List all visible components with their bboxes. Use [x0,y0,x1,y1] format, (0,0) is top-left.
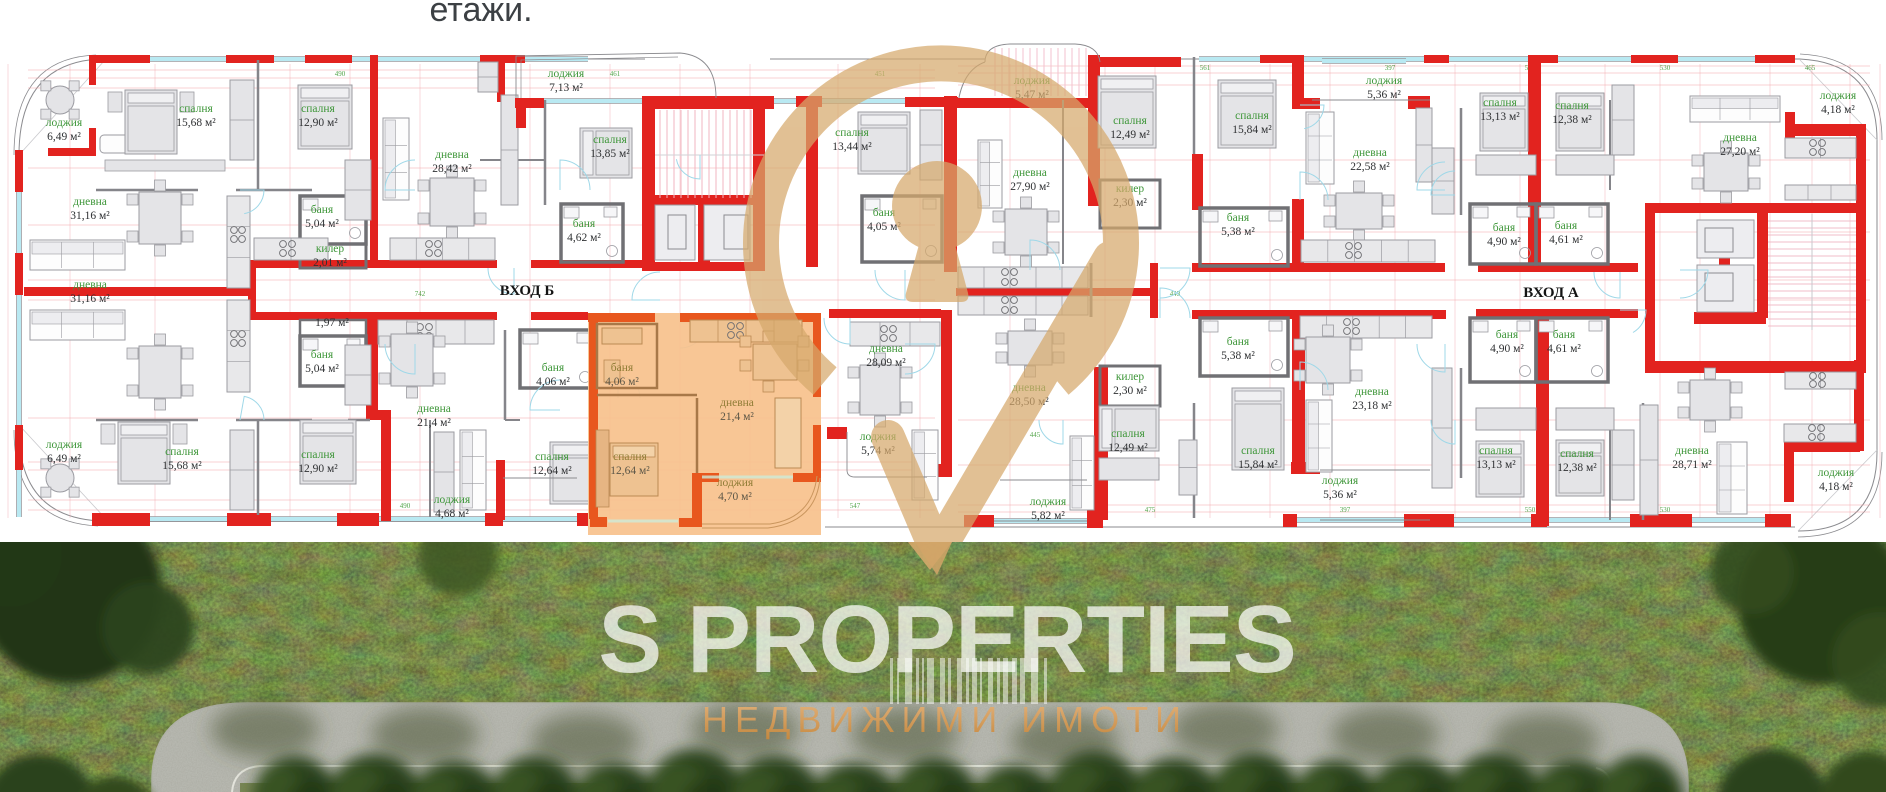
svg-text:2,01 м²: 2,01 м² [313,257,347,269]
svg-text:баня: баня [311,349,334,361]
svg-text:23,18 м²: 23,18 м² [1352,400,1392,412]
svg-text:12,64 м²: 12,64 м² [610,465,650,477]
svg-text:дневна: дневна [73,279,107,291]
svg-text:лоджия: лоджия [46,117,83,129]
svg-text:дневна: дневна [720,397,754,409]
svg-text:742: 742 [415,290,426,298]
svg-text:6,49 м²: 6,49 м² [47,131,81,143]
svg-text:27,90 м²: 27,90 м² [1010,181,1050,193]
svg-text:спалня: спалня [1560,448,1594,460]
svg-text:4,90 м²: 4,90 м² [1490,343,1524,355]
svg-text:5,04 м²: 5,04 м² [305,218,339,230]
svg-text:4,18 м²: 4,18 м² [1821,104,1855,116]
svg-text:баня: баня [1496,329,1519,341]
svg-text:465: 465 [1805,64,1816,72]
svg-text:490: 490 [400,502,411,510]
svg-text:лоджия: лоджия [1820,90,1857,102]
svg-text:дневна: дневна [1355,386,1389,398]
svg-text:лоджия: лоджия [548,68,585,80]
svg-text:28,42 м²: 28,42 м² [432,163,472,175]
svg-text:килер: килер [316,243,345,255]
svg-text:15,68 м²: 15,68 м² [162,460,202,472]
svg-text:1,97 м²: 1,97 м² [315,317,349,329]
svg-text:етажи.: етажи. [429,0,532,29]
svg-text:баня: баня [311,204,334,216]
svg-text:S PROPERTIES: S PROPERTIES [598,586,1296,693]
svg-text:5,82 м²: 5,82 м² [1031,510,1065,522]
svg-text:спалня: спалня [179,103,213,115]
svg-text:дневна: дневна [1675,445,1709,457]
svg-text:спалня: спалня [165,446,199,458]
svg-text:спалня: спалня [1479,445,1513,457]
svg-text:5,38 м²: 5,38 м² [1221,350,1255,362]
svg-text:15,84 м²: 15,84 м² [1232,124,1272,136]
svg-text:5,04 м²: 5,04 м² [305,363,339,375]
svg-text:баня: баня [573,218,596,230]
svg-text:13,85 м²: 13,85 м² [590,148,630,160]
svg-text:12,38 м²: 12,38 м² [1557,462,1597,474]
svg-text:лоджия: лоджия [717,477,754,489]
svg-text:4,18 м²: 4,18 м² [1819,481,1853,493]
svg-text:4,61 м²: 4,61 м² [1549,234,1583,246]
svg-text:4,61 м²: 4,61 м² [1547,343,1581,355]
svg-text:550: 550 [1525,506,1536,514]
svg-text:5,36 м²: 5,36 м² [1367,89,1401,101]
svg-text:6,49 м²: 6,49 м² [47,453,81,465]
svg-text:461: 461 [610,70,621,78]
svg-text:баня: баня [611,362,634,374]
svg-text:15,68 м²: 15,68 м² [176,117,216,129]
svg-text:5,36 м²: 5,36 м² [1323,489,1357,501]
svg-text:НЕДВИЖИМИ ИМОТИ: НЕДВИЖИМИ ИМОТИ [702,699,1188,740]
svg-text:4,68 м²: 4,68 м² [435,508,469,520]
svg-text:12,38 м²: 12,38 м² [1552,114,1592,126]
svg-text:килер: килер [1116,371,1145,383]
svg-text:31,16 м²: 31,16 м² [70,210,110,222]
svg-text:561: 561 [1200,64,1211,72]
svg-text:4,62 м²: 4,62 м² [567,232,601,244]
svg-text:4,70 м²: 4,70 м² [718,491,752,503]
svg-text:7,13 м²: 7,13 м² [549,82,583,94]
svg-text:2,30 м²: 2,30 м² [1113,385,1147,397]
svg-text:4,90 м²: 4,90 м² [1487,236,1521,248]
svg-text:спалня: спалня [301,449,335,461]
svg-text:дневна: дневна [417,403,451,415]
svg-text:28,09 м²: 28,09 м² [866,357,906,369]
svg-text:12,90 м²: 12,90 м² [298,117,338,129]
svg-text:спалня: спалня [593,134,627,146]
svg-text:спалня: спалня [1483,97,1517,109]
svg-text:547: 547 [850,502,861,510]
svg-text:баня: баня [1493,222,1516,234]
svg-text:спалня: спалня [1555,100,1589,112]
svg-text:21,4 м²: 21,4 м² [417,417,451,429]
svg-text:баня: баня [542,362,565,374]
svg-text:лоджия: лоджия [46,439,83,451]
svg-text:397: 397 [1340,506,1351,514]
svg-text:12,90 м²: 12,90 м² [298,463,338,475]
svg-text:дневна: дневна [1353,147,1387,159]
svg-text:спалня: спалня [535,451,569,463]
svg-text:4,06 м²: 4,06 м² [605,376,639,388]
svg-text:21,4 м²: 21,4 м² [720,411,754,423]
svg-text:спалня: спалня [1235,110,1269,122]
svg-text:12,49 м²: 12,49 м² [1108,442,1148,454]
svg-text:дневна: дневна [73,196,107,208]
svg-text:лоджия: лоджия [1366,75,1403,87]
svg-text:445: 445 [1030,431,1041,439]
svg-text:22,58 м²: 22,58 м² [1350,161,1390,173]
svg-text:31,16 м²: 31,16 м² [70,293,110,305]
svg-text:12,64 м²: 12,64 м² [532,465,572,477]
svg-text:ВХОД Б: ВХОД Б [500,283,555,299]
svg-text:4,06 м²: 4,06 м² [536,376,570,388]
svg-text:397: 397 [1385,64,1396,72]
svg-text:спалня: спалня [613,451,647,463]
svg-text:лоджия: лоджия [1322,475,1359,487]
svg-text:лоджия: лоджия [1030,496,1067,508]
svg-text:баня: баня [1227,336,1250,348]
svg-text:530: 530 [1660,64,1671,72]
svg-text:дневна: дневна [1013,167,1047,179]
svg-text:спалня: спалня [835,127,869,139]
svg-text:490: 490 [335,70,346,78]
svg-text:15,84 м²: 15,84 м² [1238,459,1278,471]
svg-text:дневна: дневна [435,149,469,161]
svg-text:530: 530 [1660,506,1671,514]
svg-text:12,49 м²: 12,49 м² [1110,129,1150,141]
svg-text:спалня: спалня [1113,115,1147,127]
svg-text:28,71 м²: 28,71 м² [1672,459,1712,471]
svg-text:13,13 м²: 13,13 м² [1480,111,1520,123]
svg-text:27,20 м²: 27,20 м² [1720,146,1760,158]
svg-text:5,38 м²: 5,38 м² [1221,226,1255,238]
svg-text:спалня: спалня [301,103,335,115]
svg-text:спалня: спалня [1111,428,1145,440]
svg-text:ВХОД А: ВХОД А [1523,285,1579,301]
svg-text:спалня: спалня [1241,445,1275,457]
svg-text:баня: баня [1227,212,1250,224]
svg-text:13,13 м²: 13,13 м² [1476,459,1516,471]
svg-text:дневна: дневна [869,343,903,355]
svg-text:баня: баня [1555,220,1578,232]
svg-text:лоджия: лоджия [1818,467,1855,479]
svg-text:лоджия: лоджия [434,494,471,506]
svg-text:дневна: дневна [1723,132,1757,144]
svg-text:баня: баня [1553,329,1576,341]
svg-text:475: 475 [1145,506,1156,514]
svg-text:13,44 м²: 13,44 м² [832,141,872,153]
